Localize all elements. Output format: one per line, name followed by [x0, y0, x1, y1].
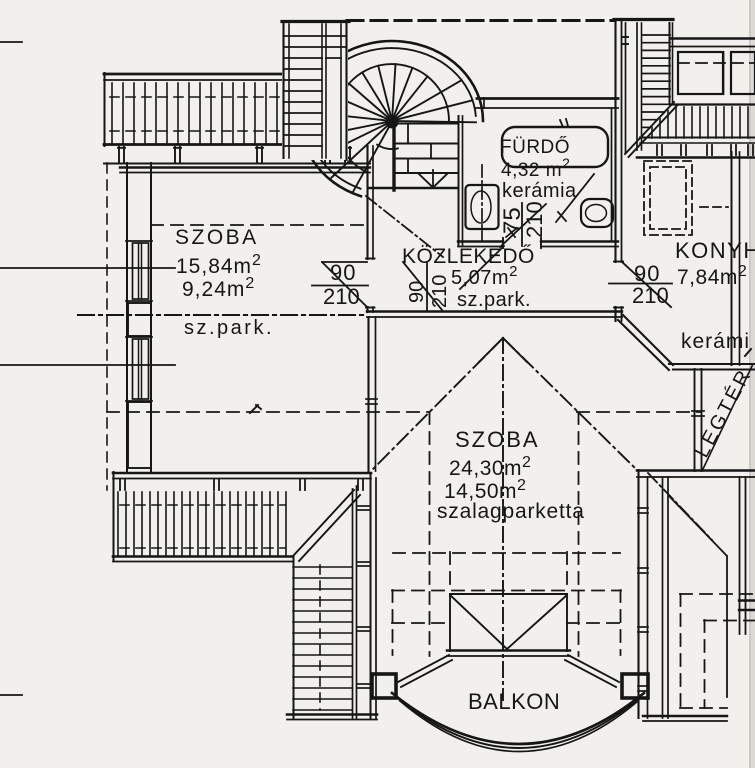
svg-text:90: 90 — [406, 281, 428, 303]
svg-text:sz.park.: sz.park. — [457, 289, 531, 311]
svg-text:210: 210 — [429, 275, 451, 308]
svg-text:210: 210 — [323, 284, 360, 309]
svg-text:kerámia: kerámia — [502, 180, 577, 202]
svg-text:kerámi: kerámi — [681, 330, 750, 353]
svg-text:9,24m2: 9,24m2 — [182, 275, 255, 301]
svg-text:FÜRDŐ: FÜRDŐ — [500, 136, 570, 158]
svg-text:sz.park.: sz.park. — [184, 317, 274, 339]
svg-text:210: 210 — [522, 201, 547, 238]
svg-text:SZOBA: SZOBA — [175, 226, 259, 249]
svg-text:7,84m2: 7,84m2 — [677, 263, 747, 289]
svg-text:szalagparketta: szalagparketta — [437, 500, 585, 523]
svg-text:BALKON: BALKON — [468, 689, 560, 714]
svg-text:210: 210 — [632, 283, 669, 308]
svg-text:SZOBA: SZOBA — [455, 427, 540, 452]
svg-text:KONYHA: KONYHA — [675, 238, 755, 263]
svg-text:90: 90 — [330, 260, 356, 285]
svg-text:5,07m2: 5,07m2 — [451, 263, 518, 289]
